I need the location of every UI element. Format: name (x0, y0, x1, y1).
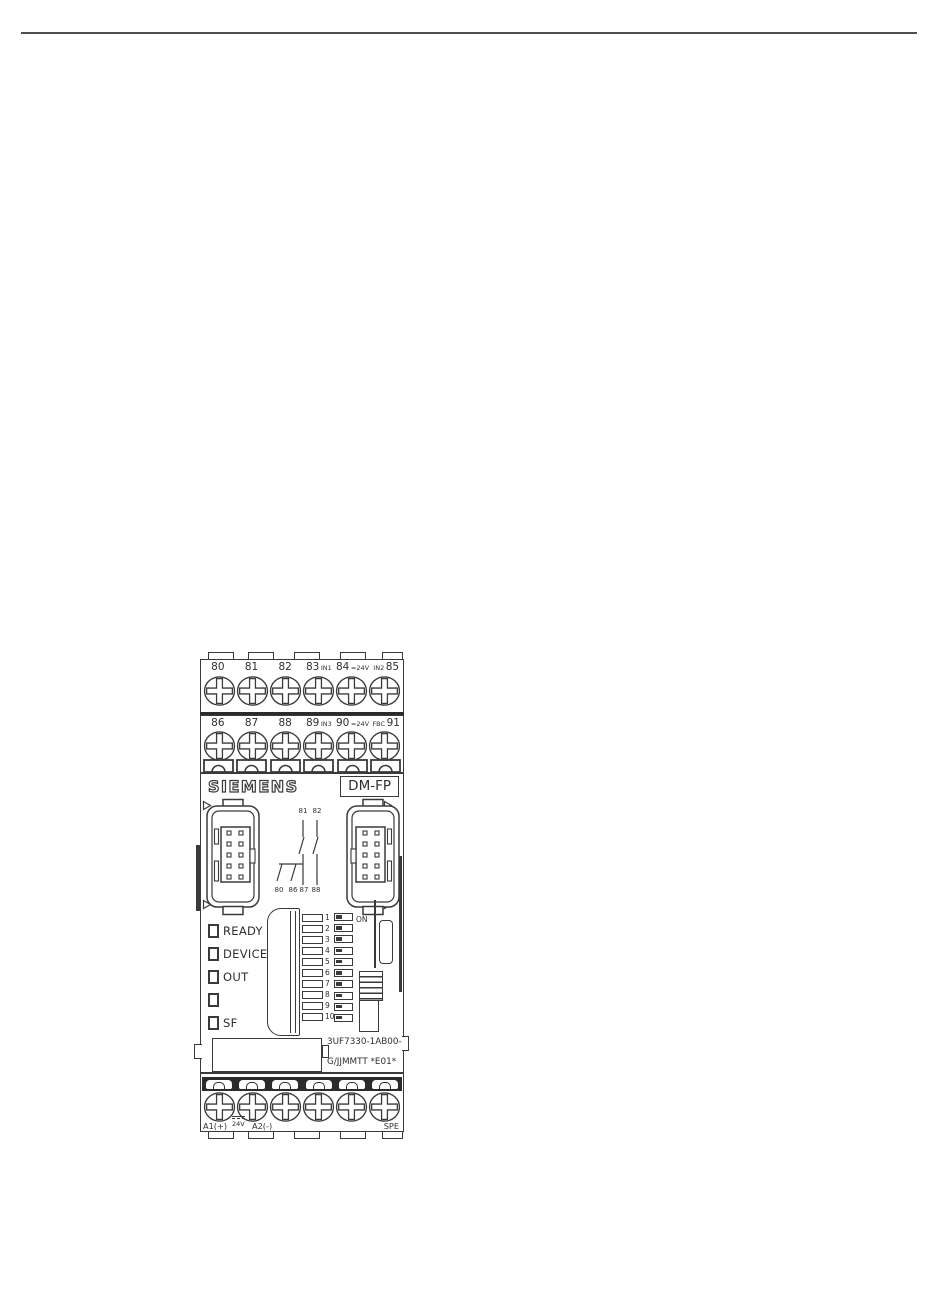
terminal-label: 88 (268, 717, 302, 729)
terminal-label-spe: SPE (384, 1121, 399, 1131)
edge-notch (382, 652, 403, 659)
screw-terminal-icon (236, 729, 269, 763)
pin-contact-icon (302, 925, 323, 933)
edge-notch (248, 652, 274, 659)
screw-terminal-icon (269, 1090, 302, 1124)
screw-terminal-icon (269, 729, 302, 763)
part-number: 3UF7330-1AB00-0 (327, 1037, 407, 1047)
system-interface-connector-left (204, 798, 262, 916)
simocode-dm-fp-module-drawing: 80 81 82 83IN1 84=24V IN285 86 87 88 89I… (200, 652, 404, 1139)
release-lever-base (359, 1001, 379, 1032)
led-indicator-icon (208, 970, 219, 984)
edge-notch (340, 652, 366, 659)
pin-contact-icon (302, 980, 323, 988)
pin-row: 10 (302, 1013, 335, 1022)
screw-row-2 (203, 729, 401, 763)
side-mount-tab (402, 1036, 409, 1051)
siemens-logo: SIEMENS (208, 777, 299, 796)
screw-terminal-icon (302, 729, 335, 763)
screw-terminal-icon (335, 1090, 368, 1124)
screw-terminal-icon (302, 674, 335, 708)
module-top-edge (200, 652, 404, 659)
screw-terminal-icon (368, 674, 401, 708)
terminal-label: FBC91 (369, 717, 403, 729)
wire-cage-icon (206, 1080, 232, 1089)
led-indicator-icon (208, 993, 219, 1007)
wire-cage-icon (337, 759, 368, 773)
schematic-terminal-label: 81 (296, 807, 310, 815)
terminal-label: 83IN1 (302, 661, 336, 673)
pin-row: 2 (302, 924, 335, 933)
dc-supply-label: 24V (232, 1116, 245, 1128)
terminal-label-a2: A2(-) (252, 1121, 272, 1131)
release-lever-tab (379, 920, 393, 964)
dip-on-label: ON (356, 915, 368, 924)
pin-contact-icon (302, 1002, 323, 1010)
pin-contact-icon (302, 958, 323, 966)
dip-switch-icon (334, 935, 353, 943)
terminal-label: 89IN3 (302, 717, 336, 729)
pin-row: 8 (302, 991, 335, 1000)
pin-row: 1 (302, 913, 335, 922)
wire-cage-band (202, 1077, 402, 1091)
terminal-label: 86 (201, 717, 235, 729)
wire-cage-icon (372, 1080, 398, 1089)
contact-schematic-lines (271, 807, 327, 897)
pin-contact-icon (302, 914, 323, 922)
screw-terminal-icon (236, 674, 269, 708)
edge-notch (248, 1132, 274, 1139)
pin-number-column: 1 2 3 4 5 6 7 8 9 10 (302, 913, 335, 1022)
dip-switch-icon (334, 947, 353, 955)
dc-symbol-icon (232, 1116, 245, 1119)
side-mount-tab (194, 1044, 202, 1059)
pin-contact-icon (302, 969, 323, 977)
dip-switch-icon (334, 924, 353, 932)
wire-cage-icon (339, 1080, 365, 1089)
pin-contact-icon (302, 1013, 323, 1021)
edge-notch (208, 652, 234, 659)
module-bottom-edge (200, 1132, 404, 1139)
wire-cage-icon (239, 1080, 265, 1089)
edge-notch (294, 652, 320, 659)
terminal-label: IN285 (369, 661, 403, 673)
schematic-terminal-label: 88 (309, 886, 323, 894)
blank-label-plate (212, 1038, 322, 1072)
terminal-labels-row2: 86 87 88 89IN3 90=24V FBC91 (201, 717, 403, 729)
system-interface-connector-right (344, 798, 402, 916)
pin-row: 3 (302, 935, 335, 944)
edge-notch (382, 1132, 403, 1139)
schematic-terminal-label: 80 (272, 886, 286, 894)
wire-cage-icon (270, 759, 301, 773)
schematic-terminal-label: 82 (310, 807, 324, 815)
led-indicator-icon (208, 947, 219, 961)
screw-terminal-icon (302, 1090, 335, 1124)
edge-notch (208, 1132, 234, 1139)
screw-terminal-icon (269, 674, 302, 708)
dip-switch-block (334, 913, 353, 1022)
dip-switch-icon (334, 1014, 353, 1022)
led-blank (208, 992, 223, 1007)
pin-contact-icon (302, 936, 323, 944)
pin-row: 9 (302, 1002, 335, 1011)
led-indicator-icon (208, 1016, 219, 1030)
screw-terminal-icon (368, 1090, 401, 1124)
release-lever-arm (374, 900, 376, 968)
wire-cage-icon (272, 1080, 298, 1089)
screw-terminal-icon (203, 674, 236, 708)
side-plug (196, 845, 201, 911)
terminal-label: 82 (268, 661, 302, 673)
terminal-label: 87 (235, 717, 269, 729)
model-badge: DM-FP (340, 776, 399, 797)
terminal-label: 81 (235, 661, 269, 673)
terminal-block-bottom: A1(+) 24V A2(-) SPE (200, 1073, 404, 1132)
terminal-block-row1: 80 81 82 83IN1 84=24V IN285 (200, 659, 404, 712)
module-front-panel: SIEMENS DM-FP 81 82 80 86 87 88 READY DE… (200, 773, 404, 1073)
led-ready: READY (208, 923, 263, 938)
screw-terminal-icon (368, 729, 401, 763)
wire-cage-icon (370, 759, 401, 773)
terminal-label: 80 (201, 661, 235, 673)
dip-switch-icon (334, 958, 353, 966)
pin-contact-icon (302, 991, 323, 999)
screw-terminal-icon (203, 729, 236, 763)
dip-switch-icon (334, 913, 353, 921)
terminal-labels-row1: 80 81 82 83IN1 84=24V IN285 (201, 661, 403, 673)
wire-cage-icon (236, 759, 267, 773)
led-out: OUT (208, 969, 248, 984)
terminal-label: 90=24V (336, 717, 370, 729)
wire-cage-icon (306, 1080, 332, 1089)
wire-cage-row (203, 759, 401, 773)
release-lever-grip (359, 971, 383, 1001)
front-cover-flap (267, 908, 300, 1036)
terminal-block-row2: 86 87 88 89IN3 90=24V FBC91 (200, 715, 404, 773)
terminal-label: 84=24V (336, 661, 370, 673)
pin-row: 5 (302, 957, 335, 966)
screw-terminal-icon (335, 729, 368, 763)
page-top-rule (21, 32, 917, 34)
dip-switch-icon (334, 969, 353, 977)
dip-switch-icon (334, 980, 353, 988)
edge-notch (294, 1132, 320, 1139)
contact-schematic: 81 82 80 86 87 88 (271, 807, 327, 897)
edge-notch (340, 1132, 366, 1139)
screw-terminal-icon (335, 674, 368, 708)
side-rail (399, 856, 403, 992)
pin-row: 4 (302, 946, 335, 955)
pin-row: 6 (302, 969, 335, 978)
led-indicator-icon (208, 924, 219, 938)
date-code: G/JJMMTT *E01* (327, 1057, 396, 1067)
dip-switch-icon (334, 1003, 353, 1011)
dip-switch-icon (334, 992, 353, 1000)
wire-cage-icon (303, 759, 334, 773)
pin-contact-icon (302, 947, 323, 955)
document-page: { "colors": { "line": "#3a3a3a", "ink": … (0, 0, 950, 1301)
screw-row-1 (203, 674, 401, 708)
pin-row: 7 (302, 980, 335, 989)
led-sf: SF (208, 1015, 238, 1030)
wire-cage-icon (203, 759, 234, 773)
terminal-label-a1: A1(+) (203, 1121, 227, 1131)
led-device: DEVICE (208, 946, 267, 961)
